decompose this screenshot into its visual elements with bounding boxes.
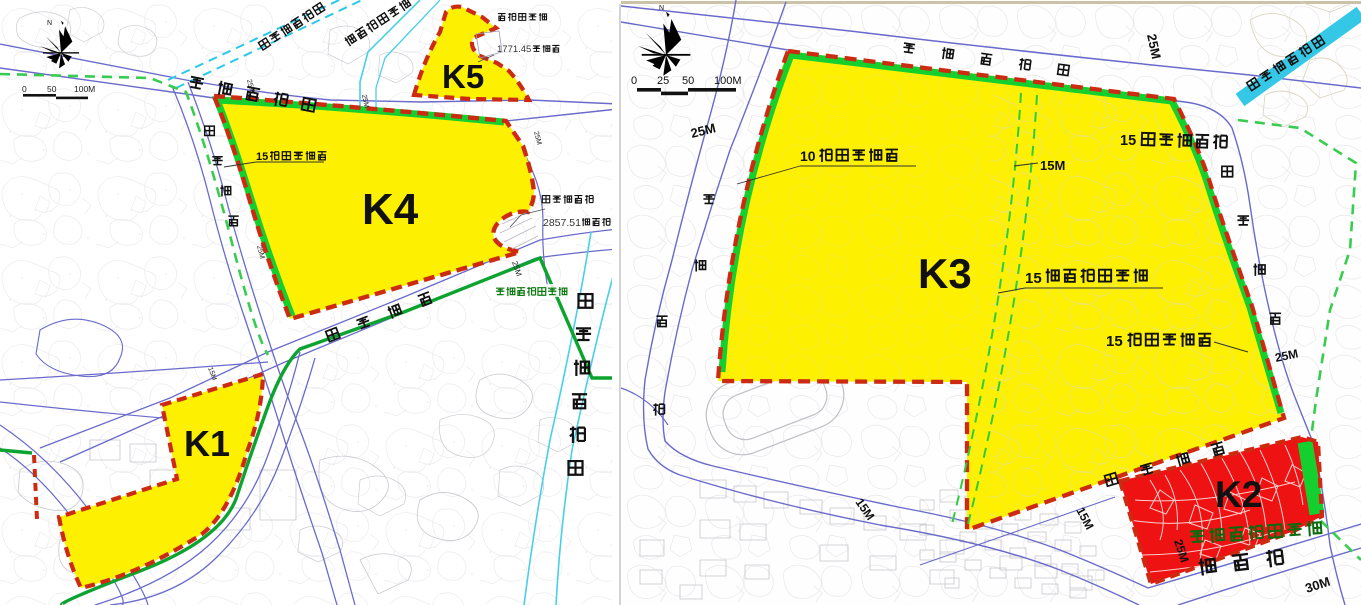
svg-text:K5: K5: [442, 58, 484, 95]
svg-text:15: 15: [1025, 270, 1042, 287]
svg-text:0: 0: [631, 75, 637, 87]
svg-text:50: 50: [682, 75, 694, 87]
svg-text:K2: K2: [1215, 474, 1262, 515]
svg-text:15: 15: [256, 151, 268, 163]
svg-text:K3: K3: [918, 250, 972, 297]
svg-text:10: 10: [800, 148, 816, 164]
svg-text:2857.51: 2857.51: [543, 217, 581, 229]
svg-text:K4: K4: [362, 185, 419, 234]
svg-text:15M: 15M: [1040, 158, 1065, 173]
svg-text:15: 15: [1120, 133, 1136, 149]
svg-text:K1: K1: [184, 423, 230, 464]
svg-text:0: 0: [22, 84, 27, 94]
svg-text:N: N: [47, 20, 52, 27]
svg-text:15: 15: [1106, 333, 1123, 350]
svg-text:1771.45: 1771.45: [497, 44, 531, 55]
svg-text:25: 25: [657, 75, 669, 87]
svg-text:100M: 100M: [714, 75, 742, 87]
svg-text:100M: 100M: [74, 84, 95, 94]
svg-text:N: N: [659, 5, 664, 12]
svg-text:50: 50: [47, 84, 57, 94]
